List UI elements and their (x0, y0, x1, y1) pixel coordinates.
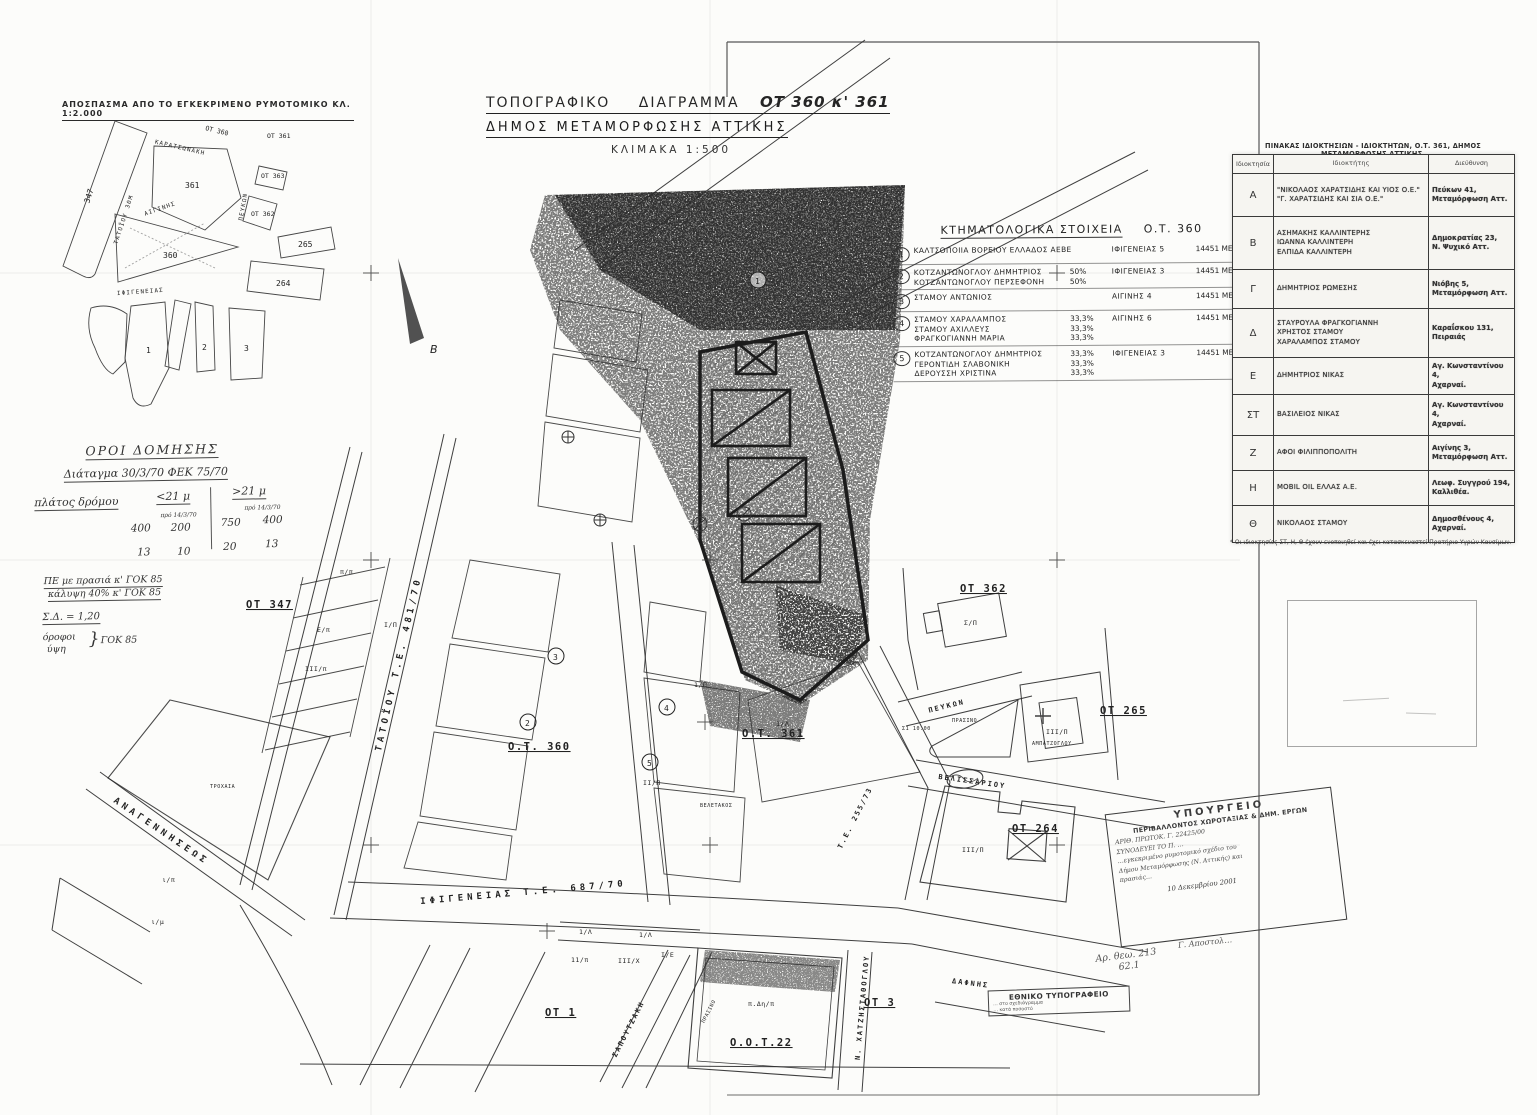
block-label-ot264: ΟΤ 264 (1012, 823, 1059, 835)
addr-line: Δημοσθένους 4, (1432, 515, 1511, 525)
entry-address: ΙΦΙΓΕΝΕΙΑΣ 5 (1106, 244, 1196, 254)
col-over-21m: >21 μ (232, 484, 266, 500)
value-10: 10 (177, 546, 191, 558)
entry-number: 5 (893, 351, 910, 366)
street-label-tatoiou: ΤΑΤΟΪΟΥ Τ.Ε. 481/70 (373, 575, 424, 752)
parcel-p9: 1/Λ (639, 931, 652, 939)
owners-table-footnote: * Οι ιδιοκτησίες ΣΤ, Η, Θ έχουν ενοποιηθ… (1230, 540, 1518, 546)
cadastral-entry: 3 ΣΤΑΜΟΥ ΑΝΤΩΝΙΟΣ ΑΙΓΙΝΗΣ 4 14451 ΜΕΤ/ΣΗ (893, 288, 1238, 312)
row-address: Δημοσθένους 4, Αχαρναί. (1429, 506, 1514, 542)
entry-number: 3 (893, 294, 910, 309)
owner-line: ΣΤΑΜΟΥ ΑΝΤΩΝΙΟΣ (914, 292, 1070, 303)
addr-line: Ν. Ψυχικό Αττ. (1432, 243, 1511, 253)
parcel-p15: Σ/Π (964, 619, 977, 627)
cadastral-entry: 4 ΣΤΑΜΟΥ ΧΑΡΑΛΑΜΠΟΣ ΣΤΑΜΟΥ ΑΧΙΛΛΕΥΣ ΦΡΑΓ… (893, 310, 1238, 347)
faint-mark (1343, 698, 1389, 701)
addr-line: Καλλιθέα. (1432, 488, 1511, 498)
owner-line: ΦΡΑΓΚΟΓΙΑΝΝΗ ΜΑΡΙΑ (914, 333, 1070, 344)
inset-street-ifigeneias: ΙΦΙΓΕΝΕΙΑΣ (117, 288, 164, 297)
parcel-p8: ΙΙ/Π (643, 779, 661, 787)
addr-line: Μεταμόρφωση Αττ. (1432, 195, 1511, 205)
row-id: Δ (1233, 309, 1274, 357)
owner-name: ΒΑΣΙΛΕΙΟΣ ΝΙΚΑΣ (1277, 410, 1425, 420)
faint-empty-box (1287, 600, 1477, 747)
row-owners: ΣΤΑΥΡΟΥΛΑ ΦΡΑΓΚΟΓΙΑΝΝΗ ΧΡΗΣΤΟΣ ΣΤΑΜΟΥ ΧΑ… (1274, 309, 1429, 357)
street-label-anagenniseos: ΑΝΑΓΕΝΝΗΣΕΩΣ (111, 796, 210, 867)
owner-name: ΔΗΜΗΤΡΙΟΣ ΡΩΜΕΣΗΣ (1277, 284, 1425, 294)
owner-name: "ΝΙΚΟΛΑΟΣ ΧΑΡΑΤΣΙΔΗΣ ΚΑΙ ΥΙΟΣ Ο.Ε." (1277, 186, 1425, 196)
inset-block-3: 3 (244, 344, 249, 353)
header-owner: Ιδιοκτήτης (1274, 155, 1429, 173)
entry-address: ΙΦΙΓΕΝΕΙΑΣ 3 (1106, 266, 1196, 276)
row-address: Λεωφ. Συγγρού 194, Καλλιθέα. (1429, 471, 1514, 505)
value-750: 750 (221, 517, 241, 529)
owner-line: ΚΑΛΤΣΟΠΟΙΙΑ ΒΟΡΕΙΟΥ ΕΛΛΑΔΟΣ ΑΕΒΕ (914, 245, 1070, 256)
owner-name: ΧΡΗΣΤΟΣ ΣΤΑΜΟΥ (1277, 328, 1425, 338)
inset-label-ot363: ΟΤ 363 (261, 172, 285, 180)
table-row: Β ΑΣΗΜΑΚΗΣ ΚΑΛΛΙΝΤΕΡΗΣ ΙΩΑΝΝΑ ΚΑΛΛΙΝΤΕΡΗ… (1233, 216, 1514, 269)
owner-name: ΧΑΡΑΛΑΜΠΟΣ ΣΤΑΜΟΥ (1277, 338, 1425, 348)
cadastral-title-ot: Ο.Τ. 360 (1144, 222, 1203, 235)
owner-name: ΑΦΟΙ ΦΙΛΙΠΠΟΠΟΛΙΤΗ (1277, 448, 1425, 458)
table-row: Η MOBIL OIL ΕΛΛΑΣ Α.Ε. Λεωφ. Συγγρού 194… (1233, 470, 1514, 505)
inset-street-tatoiou: ΤΑΤΟΪΟΥ 30Μ (113, 194, 136, 245)
annotation-ampatzoglou: ΑΜΠΑΤΖΟΓΛΟΥ (1032, 741, 1072, 747)
street-label-velissariou: ΒΕΛΙΣΣΑΡΙΟΥ (938, 773, 1007, 790)
building-terms-decree: Διάταγμα 30/3/70 ΦΕΚ 75/70 (64, 465, 228, 483)
entry-percentages: 33,3% 33,3% 33,3% (1070, 349, 1106, 378)
row-address: Καραΐσκου 131, Πειραιάς (1429, 309, 1514, 357)
block-label-ot3: ΟΤ 3 (864, 997, 895, 1009)
circled-4: 4 (664, 704, 669, 713)
owner-name: ΑΣΗΜΑΚΗΣ ΚΑΛΛΙΝΤΕΡΗΣ (1277, 229, 1425, 239)
block-label-ot1: ΟΤ 1 (545, 1007, 576, 1019)
entry-number: 2 (893, 269, 910, 284)
title-block: ΤΟΠΟΓΡΑΦΙΚΟ ΔΙΑΓΡΑΜΜΑ ΟΤ 360 κ' 361 ΔΗΜΟ… (486, 92, 916, 156)
addr-line: Δημοκρατίας 23, (1432, 234, 1511, 244)
inset-street-karatsonaki: ΚΑΡΑΤΣΩΝΑΚΗ (154, 140, 206, 157)
north-label: Β (430, 343, 438, 356)
note-heights: ύψη (47, 644, 66, 655)
parcel-p11: 11/π (571, 956, 589, 964)
parcel-p5: ι/μ (151, 918, 164, 926)
table-row: Γ ΔΗΜΗΤΡΙΟΣ ΡΩΜΕΣΗΣ Νιόβης 5, Μεταμόρφωσ… (1233, 269, 1514, 308)
block-265 (1020, 628, 1118, 780)
owner-name: ΣΤΑΥΡΟΥΛΑ ΦΡΑΓΚΟΓΙΑΝΝΗ (1277, 319, 1425, 329)
sub-before-date-left: πρό 14/3/70 (160, 511, 196, 519)
entry-owners: ΚΑΛΤΣΟΠΟΙΙΑ ΒΟΡΕΙΟΥ ΕΛΛΑΔΟΣ ΑΕΒΕ (914, 245, 1070, 256)
addr-line: Πεύκων 41, (1432, 186, 1511, 196)
parcel-p17: 1/Λ (776, 720, 789, 728)
ministry-stamp: ΥΠΟΥΡΓΕΙΟ ΠΕΡΙΒΑΛΛΟΝΤΟΣ ΧΩΡΟΤΑΞΙΑΣ & ΔΗΜ… (1105, 787, 1348, 948)
street-label-dafnis: ΔΑΦΝΗΣ (952, 977, 990, 989)
cadastral-title-row: ΚΤΗΜΑΤΟΛΟΓΙΚΑ ΣΤΟΙΧΕΙΑ Ο.Τ. 360 (940, 222, 1237, 237)
row-address: Δημοκρατίας 23, Ν. Ψυχικό Αττ. (1429, 217, 1514, 269)
block-label-ot361: Ο.Τ. 361 (742, 728, 805, 740)
row-address: Νιόβης 5, Μεταμόρφωση Αττ. (1429, 270, 1514, 308)
entry-owners: ΣΤΑΜΟΥ ΧΑΡΑΛΑΜΠΟΣ ΣΤΑΜΟΥ ΑΧΙΛΛΕΥΣ ΦΡΑΓΚΟ… (914, 314, 1070, 344)
row-owners: ΔΗΜΗΤΡΙΟΣ ΡΩΜΕΣΗΣ (1274, 270, 1429, 308)
inset-label-ot360: ΟΤ 360 (205, 124, 230, 137)
addr-line: Νιόβης 5, (1432, 280, 1511, 290)
row-address: Αγ. Κωνσταντίνου 4, Αχαρναί. (1429, 395, 1514, 435)
addr-line: Αχαρναί. (1432, 524, 1511, 534)
addr-line: Αγ. Κωνσταντίνου 4, (1432, 362, 1511, 381)
inset-block-360: 360 (163, 251, 178, 260)
table-row: Ε ΔΗΜΗΤΡΙΟΣ ΝΙΚΑΣ Αγ. Κωνσταντίνου 4, Αχ… (1233, 357, 1514, 394)
faint-mark (1406, 712, 1436, 714)
row-id: Β (1233, 217, 1274, 269)
cadastral-entry: 5 ΚΟΤΖΑΝΤΩΝΟΓΛΟΥ ΔΗΜΗΤΡΙΟΣ ΓΕΡΟΝΤΙΔΗ ΣΛΑ… (893, 345, 1238, 382)
annotation-veletakos: ΒΕΛΕΤΑΚΟΣ (700, 803, 733, 809)
addr-line: Μεταμόρφωση Αττ. (1432, 453, 1511, 463)
building-terms-title: ΟΡΟΙ ΔΟΜΗΣΗΣ (85, 441, 219, 460)
block-labels: ΟΤ 347 Ο.Τ. 360 Ο.Τ. 361 ΟΤ 362 ΟΤ 265 Ο… (246, 583, 1147, 1049)
row-id: Θ (1233, 506, 1274, 542)
header-ownership: Ιδιοκτησία (1233, 155, 1274, 173)
addr-line: Αιγίνης 3, (1432, 444, 1511, 454)
row-owners: ΑΣΗΜΑΚΗΣ ΚΑΛΛΙΝΤΕΡΗΣ ΙΩΑΝΝΑ ΚΑΛΛΙΝΤΕΡΗ Ε… (1274, 217, 1429, 269)
row-owners: ΑΦΟΙ ΦΙΛΙΠΠΟΠΟΛΙΤΗ (1274, 436, 1429, 470)
row-id: Α (1233, 174, 1274, 216)
pct-line: 33,3% (1070, 349, 1106, 359)
addr-line: Καραΐσκου 131, (1432, 324, 1511, 334)
addr-line: Αχαρναί. (1432, 420, 1511, 430)
building-terms-panel: ΟΡΟΙ ΔΟΜΗΣΗΣ Διάταγμα 30/3/70 ΦΕΚ 75/70 … (33, 440, 296, 645)
row-id: Ε (1233, 358, 1274, 394)
annotation-prasino-strip: ΠΡΑΣΙΝΟ (701, 999, 718, 1024)
inset-map: 347 361 360 265 264 1 2 3 ΟΤ 360 ΟΤ 361 … (55, 118, 355, 433)
parcel-p7: 1/Π (694, 681, 707, 689)
owner-name: "Γ. ΧΑΡΑΤΣΙΔΗΣ ΚΑΙ ΣΙΑ Ο.Ε." (1277, 195, 1425, 205)
value-20: 20 (223, 541, 237, 553)
note-brace: } (89, 629, 100, 649)
row-owners: MOBIL OIL ΕΛΛΑΣ Α.Ε. (1274, 471, 1429, 505)
owner-name: ΝΙΚΟΛΑΟΣ ΣΤΑΜΟΥ (1277, 519, 1425, 529)
parcel-p4: ι/π (162, 876, 175, 884)
owner-line: ΚΟΤΖΑΝΤΩΝΟΓΛΟΥ ΠΕΡΣΕΦΟΝΗ (914, 277, 1070, 288)
inset-label-ot361: ΟΤ 361 (267, 132, 291, 140)
road-width-label: πλάτος δρόμου (34, 495, 118, 511)
annotation-prasino: ΠΡΑΣΙΝΟ (952, 718, 977, 724)
inset-block-264: 264 (276, 279, 291, 288)
entry-owners: ΚΟΤΖΑΝΤΩΝΟΓΛΟΥ ΔΗΜΗΤΡΙΟΣ ΓΕΡΟΝΤΙΔΗ ΣΛΑΒΟ… (914, 349, 1070, 379)
scale-label: ΚΛΙΜΑΚΑ 1:500 (611, 144, 916, 156)
row-id: Η (1233, 471, 1274, 505)
entry-percentages: 33,3% 33,3% 33,3% (1070, 314, 1106, 343)
cadastral-entry: 1 ΚΑΛΤΣΟΠΟΙΙΑ ΒΟΡΕΙΟΥ ΕΛΛΑΔΟΣ ΑΕΒΕ ΙΦΙΓΕ… (893, 241, 1238, 265)
parcel-p16: π.Δη/π (748, 1000, 774, 1008)
row-address: Αγ. Κωνσταντίνου 4, Αχαρναί. (1429, 358, 1514, 394)
row-id: Γ (1233, 270, 1274, 308)
block-label-oot22: Ο.Ο.Τ.22 (730, 1037, 793, 1049)
parcel-p18: ΙΙΙ/Π (1046, 728, 1068, 736)
addr-line: Μεταμόρφωση Αττ. (1432, 289, 1511, 299)
row-id: ΣΤ (1233, 395, 1274, 435)
parcel-p1: π/π (340, 568, 353, 576)
parcel-p10: 1/Λ (579, 928, 592, 936)
owner-name: ΙΩΑΝΝΑ ΚΑΛΛΙΝΤΕΡΗ (1277, 238, 1425, 248)
inset-block-347: 347 (82, 188, 95, 205)
row-owners: ΒΑΣΙΛΕΙΟΣ ΝΙΚΑΣ (1274, 395, 1429, 435)
column-divider (210, 487, 212, 549)
trochaia-block (108, 700, 330, 880)
addr-line: Λεωφ. Συγγρού 194, (1432, 479, 1511, 489)
annotation-trochaia: ΤΡΟΧΑΙΑ (210, 784, 235, 790)
circled-5: 5 (647, 759, 652, 768)
value-400b: 400 (263, 514, 283, 526)
col-under-21m: <21 μ (156, 490, 190, 506)
entry-number: 4 (893, 316, 910, 331)
block-label-ot265: ΟΤ 265 (1100, 705, 1147, 717)
value-200: 200 (171, 522, 191, 534)
value-400a: 400 (131, 522, 151, 534)
street-label-ifigeneias: ΙΦΙΓΕΝΕΙΑΣ Τ.Ε. 687/70 (420, 879, 627, 907)
cadastral-title: ΚΤΗΜΑΤΟΛΟΓΙΚΑ ΣΤΟΙΧΕΙΑ (940, 223, 1122, 239)
parcel-p6: Ι/Π (384, 621, 397, 629)
owner-name: ΕΛΠΙΔΑ ΚΑΛΛΙΝΤΕΡΗ (1277, 248, 1425, 258)
note-coverage: κάλυψη 40% κ' ΓΟΚ 85 (48, 587, 161, 602)
addr-line: Αχαρναί. (1432, 381, 1511, 391)
table-row: Α "ΝΙΚΟΛΑΟΣ ΧΑΡΑΤΣΙΔΗΣ ΚΑΙ ΥΙΟΣ Ο.Ε." "Γ… (1233, 173, 1514, 216)
block-label-ot360: Ο.Τ. 360 (508, 741, 571, 753)
municipality-subtitle: ΔΗΜΟΣ ΜΕΤΑΜΟΡΦΩΣΗΣ ΑΤΤΙΚΗΣ (486, 120, 788, 138)
owners-table-header: Ιδιοκτησία Ιδιοκτήτης Διεύθυνση (1233, 155, 1514, 173)
parcel-p3: ΙΙΙ/π (305, 665, 327, 673)
inset-block-361: 361 (185, 181, 200, 190)
pct-line: 50% (1070, 276, 1106, 286)
circled-3: 3 (553, 653, 558, 662)
row-id: Ζ (1233, 436, 1274, 470)
table-row: Ζ ΑΦΟΙ ΦΙΛΙΠΠΟΠΟΛΙΤΗ Αιγίνης 3, Μεταμόρφ… (1233, 435, 1514, 470)
row-address: Αιγίνης 3, Μεταμόρφωση Αττ. (1429, 436, 1514, 470)
owner-line: ΔΕΡΟΥΣΣΗ ΧΡΙΣΤΙΝΑ (914, 368, 1070, 379)
table-row: Δ ΣΤΑΥΡΟΥΛΑ ΦΡΑΓΚΟΓΙΑΝΝΗ ΧΡΗΣΤΟΣ ΣΤΑΜΟΥ … (1233, 308, 1514, 357)
pct-line: 33,3% (1070, 314, 1106, 324)
pct-line: 33,3% (1070, 323, 1106, 333)
note-sd: Σ.Δ. = 1,20 (42, 611, 100, 625)
parcel-p2: Ε/π (317, 626, 330, 634)
owner-name: MOBIL OIL ΕΛΛΑΣ Α.Ε. (1277, 483, 1425, 493)
table-row: Θ ΝΙΚΟΛΑΟΣ ΣΤΑΜΟΥ Δημοσθένους 4, Αχαρναί… (1233, 505, 1514, 542)
inset-street-peukon: ΠΕΥΚΩΝ (239, 192, 250, 221)
circled-1: 1 (755, 277, 760, 286)
cadastral-entry: 2 ΚΟΤΖΑΝΤΩΝΟΓΛΟΥ ΔΗΜΗΤΡΙΟΣ ΚΟΤΖΑΝΤΩΝΟΓΛΟ… (893, 263, 1238, 291)
pct-line: 33,3% (1070, 368, 1106, 378)
street-label-peukon: ΠΕΥΚΩΝ (928, 698, 966, 715)
addr-line: Πειραιάς (1432, 333, 1511, 343)
title-word-diagramma: ΔΙΑΓΡΑΜΜΑ (639, 95, 740, 111)
row-owners: "ΝΙΚΟΛΑΟΣ ΧΑΡΑΤΣΙΔΗΣ ΚΑΙ ΥΙΟΣ Ο.Ε." "Γ. … (1274, 174, 1429, 216)
inset-block-1: 1 (146, 346, 151, 355)
entry-percentages: 50% 50% (1070, 267, 1106, 286)
parcel-p13: Ι/Ε (661, 951, 674, 959)
inset-block-2: 2 (202, 343, 207, 352)
title-word-topografiko: ΤΟΠΟΓΡΑΦΙΚΟ (486, 95, 610, 111)
entry-number: 1 (893, 247, 910, 262)
parcel-p12: ΙΙΙ/Χ (618, 957, 640, 965)
row-owners: ΔΗΜΗΤΡΙΟΣ ΝΙΚΑΣ (1274, 358, 1429, 394)
circled-2: 2 (525, 719, 530, 728)
annotation-s1: Σ1 10.00 (902, 726, 931, 732)
table-row: ΣΤ ΒΑΣΙΛΕΙΟΣ ΝΙΚΑΣ Αγ. Κωνσταντίνου 4, Α… (1233, 394, 1514, 435)
entry-owners: ΚΟΤΖΑΝΤΩΝΟΓΛΟΥ ΔΗΜΗΤΡΙΟΣ ΚΟΤΖΑΝΤΩΝΟΓΛΟΥ … (914, 267, 1070, 287)
header-address: Διεύθυνση (1429, 155, 1514, 173)
entry-owners: ΣΤΑΜΟΥ ΑΝΤΩΝΙΟΣ (914, 292, 1070, 303)
owners-table: Ιδιοκτησία Ιδιοκτήτης Διεύθυνση Α "ΝΙΚΟΛ… (1232, 154, 1515, 543)
entry-address: ΑΙΓΙΝΗΣ 4 (1106, 291, 1196, 301)
inset-label-ot362: ΟΤ 362 (251, 210, 275, 218)
street-label-te255-73: Τ.Ε. 255/73 (836, 786, 874, 851)
cadastral-panel: ΚΤΗΜΑΤΟΛΟΓΙΚΑ ΣΤΟΙΧΕΙΑ Ο.Τ. 360 1 ΚΑΛΤΣΟ… (892, 222, 1238, 382)
block-label-ot362: ΟΤ 362 (960, 583, 1007, 595)
value-13a: 13 (137, 546, 151, 558)
scanned-topographic-sheet: { "doc": { "extract_title": "ΑΠΟΣΠΑΣΜΑ Α… (0, 0, 1537, 1115)
pct-line: 33,3% (1070, 333, 1106, 343)
map-title-line: ΤΟΠΟΓΡΑΦΙΚΟ ΔΙΑΓΡΑΜΜΑ ΟΤ 360 κ' 361 (486, 93, 890, 114)
addr-line: Αγ. Κωνσταντίνου 4, (1432, 401, 1511, 420)
row-owners: ΝΙΚΟΛΑΟΣ ΣΤΑΜΟΥ (1274, 506, 1429, 542)
value-13b: 13 (265, 538, 279, 550)
sub-before-date-right: πρό 14/3/70 (244, 504, 280, 512)
pct-line: 50% (1070, 267, 1106, 277)
inset-block-265: 265 (298, 240, 313, 249)
row-address: Πεύκων 41, Μεταμόρφωση Αττ. (1429, 174, 1514, 216)
title-block-numbers: ΟΤ 360 κ' 361 (760, 93, 890, 111)
note-gok85: ΓΟΚ 85 (101, 634, 138, 646)
entry-address: ΑΙΓΙΝΗΣ 6 (1106, 313, 1196, 323)
pct-line: 33,3% (1070, 358, 1106, 368)
owner-name: ΔΗΜΗΤΡΙΟΣ ΝΙΚΑΣ (1277, 371, 1425, 381)
national-printing-stamp: ΕΘΝΙΚΟ ΤΥΠΟΓΡΑΦΕΙΟ … στο σχεδιάγραμμα … … (988, 986, 1131, 1017)
parcel-p14: ΙΙΙ/Π (962, 846, 984, 854)
entry-address: ΙΦΙΓΕΝΕΙΑΣ 3 (1106, 348, 1196, 358)
note-floors: όροφοι (43, 632, 76, 644)
